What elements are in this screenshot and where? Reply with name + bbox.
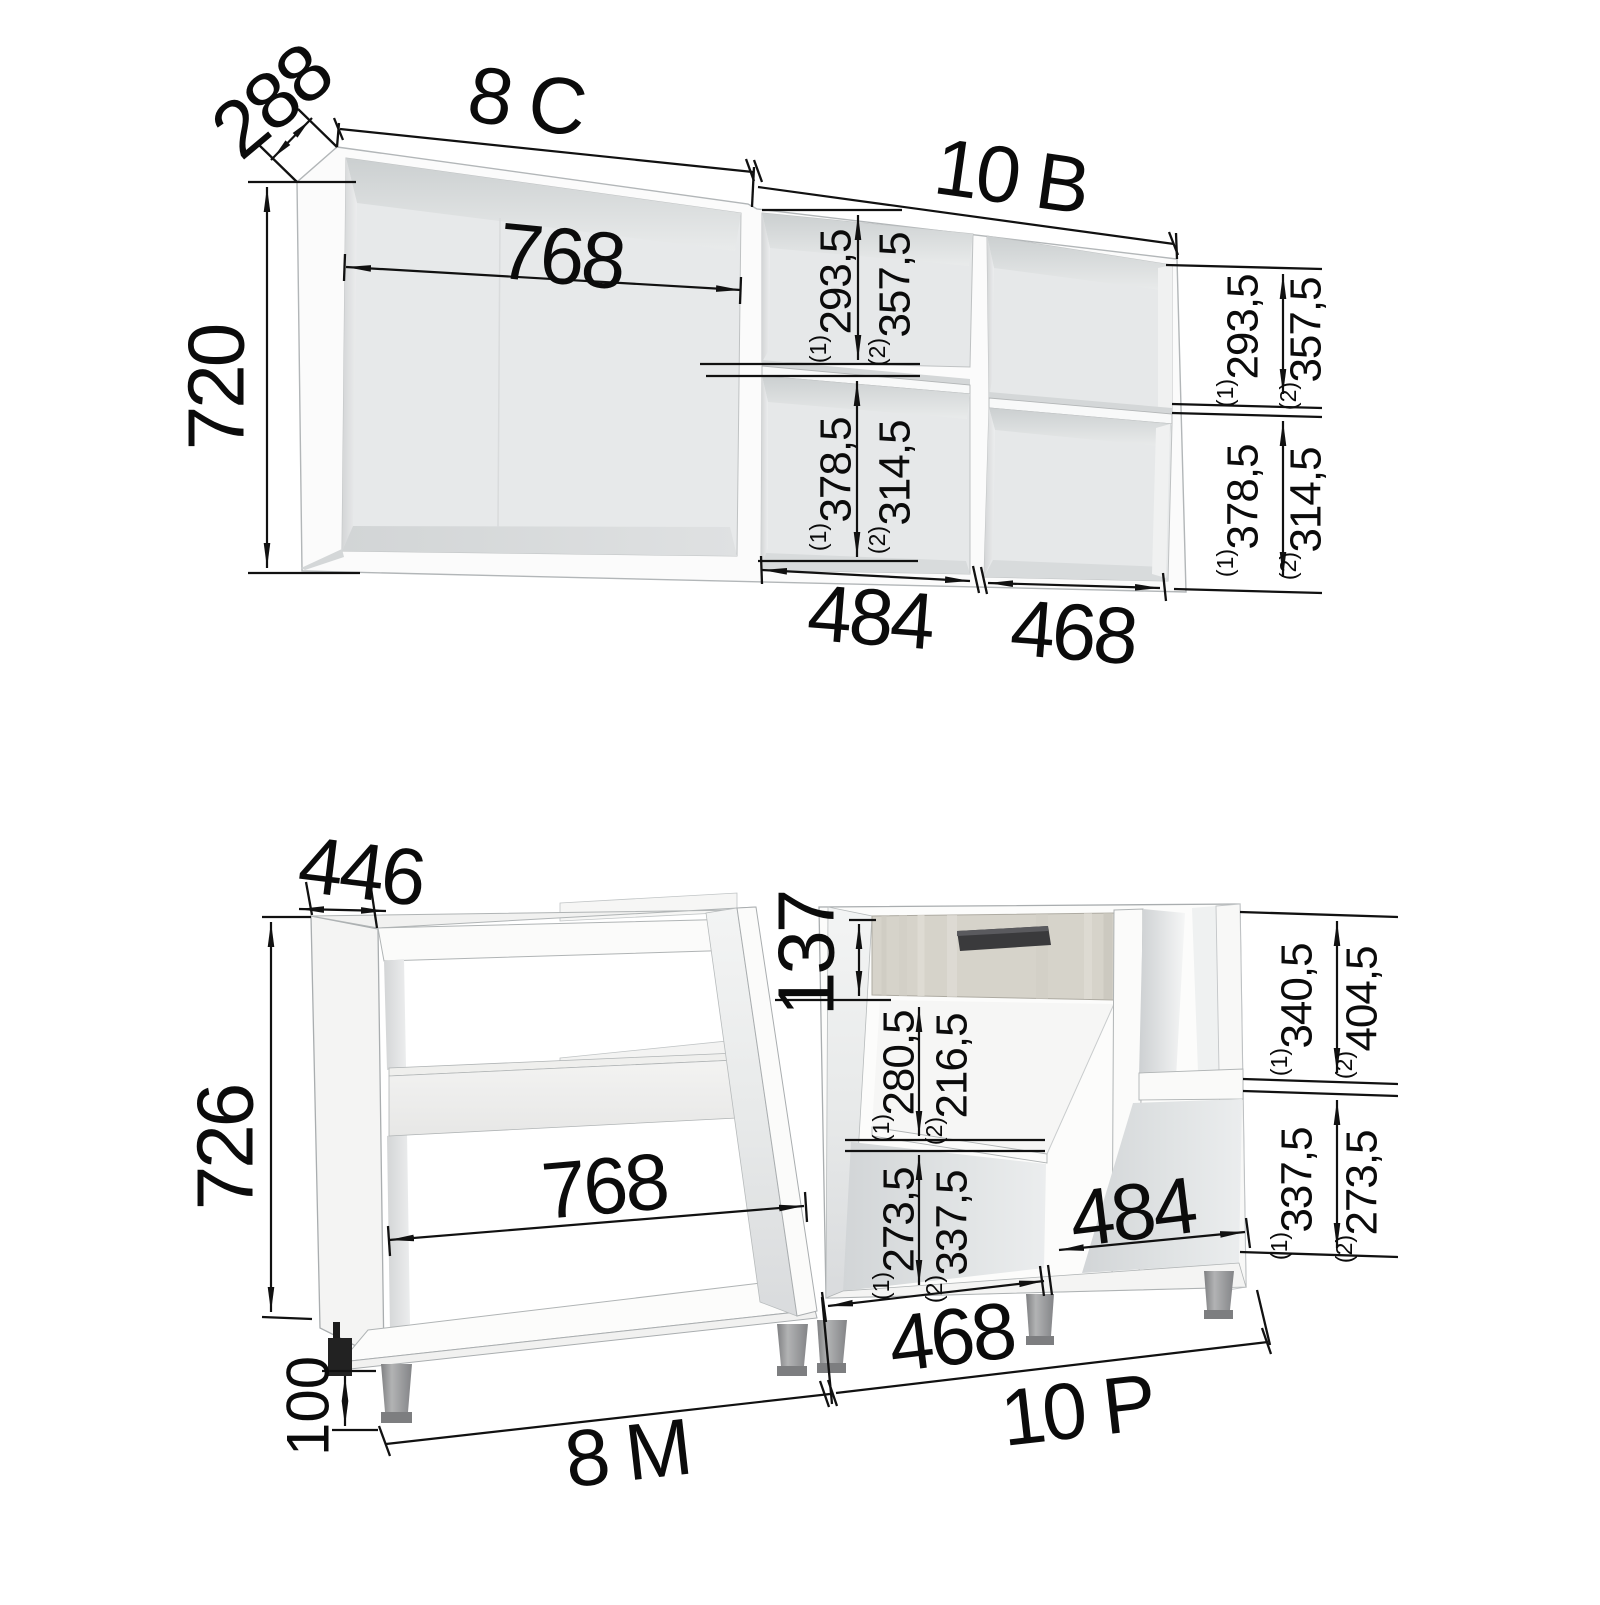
svg-text:404,5: 404,5: [1338, 946, 1387, 1051]
svg-text:378,5: 378,5: [1219, 444, 1268, 549]
svg-text:720: 720: [172, 325, 261, 450]
svg-text:8 C: 8 C: [463, 49, 590, 153]
svg-text:(1): (1): [1212, 549, 1238, 577]
svg-text:314,5: 314,5: [1282, 447, 1331, 552]
svg-text:(1): (1): [805, 523, 831, 551]
svg-text:314,5: 314,5: [871, 420, 920, 525]
svg-text:293,5: 293,5: [1219, 274, 1268, 379]
svg-text:(2): (2): [864, 338, 890, 366]
svg-text:(1): (1): [868, 1114, 894, 1142]
svg-text:280,5: 280,5: [875, 1010, 924, 1115]
svg-text:768: 768: [538, 1136, 670, 1236]
svg-text:468: 468: [1007, 583, 1139, 682]
svg-text:378,5: 378,5: [812, 417, 861, 522]
svg-text:484: 484: [1065, 1160, 1201, 1264]
svg-text:484: 484: [804, 568, 937, 667]
svg-text:(1): (1): [1266, 1048, 1292, 1076]
svg-text:357,5: 357,5: [1282, 277, 1331, 382]
svg-text:357,5: 357,5: [871, 232, 920, 337]
svg-text:446: 446: [294, 819, 428, 923]
svg-text:(1): (1): [805, 335, 831, 363]
svg-text:768: 768: [495, 206, 628, 307]
svg-text:(1): (1): [868, 1272, 894, 1300]
svg-text:8 M: 8 M: [560, 1402, 694, 1505]
svg-text:(2): (2): [864, 526, 890, 554]
svg-text:(1): (1): [1266, 1232, 1292, 1260]
svg-text:293,5: 293,5: [812, 229, 861, 334]
svg-text:(2): (2): [921, 1117, 947, 1145]
svg-text:100: 100: [275, 1356, 342, 1456]
svg-text:273,5: 273,5: [1338, 1130, 1387, 1235]
svg-text:10 P: 10 P: [996, 1357, 1158, 1463]
svg-text:340,5: 340,5: [1273, 943, 1322, 1048]
svg-text:(2): (2): [1275, 552, 1301, 580]
svg-text:337,5: 337,5: [1273, 1127, 1322, 1232]
svg-text:(1): (1): [1212, 379, 1238, 407]
svg-text:137: 137: [762, 892, 851, 1016]
svg-text:337,5: 337,5: [928, 1170, 977, 1275]
svg-text:273,5: 273,5: [875, 1167, 924, 1272]
svg-text:(2): (2): [1331, 1051, 1357, 1079]
svg-text:(2): (2): [1331, 1235, 1357, 1263]
svg-text:726: 726: [181, 1086, 270, 1210]
svg-text:216,5: 216,5: [928, 1013, 977, 1118]
